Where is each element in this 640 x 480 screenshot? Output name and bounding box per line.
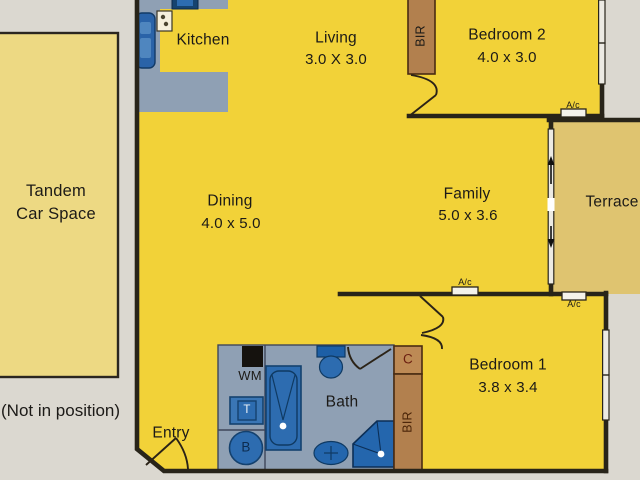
window-bedroom2 bbox=[599, 0, 605, 84]
label-bir-bedroom1: BIR bbox=[401, 411, 415, 432]
label-kitchen: Kitchen bbox=[176, 33, 229, 50]
bathtub-icon bbox=[266, 366, 301, 450]
sliding-door-terrace bbox=[548, 129, 555, 284]
label-entry: Entry bbox=[152, 426, 189, 443]
label-dining: Dining bbox=[207, 194, 252, 211]
label-car-space-line2: Car Space bbox=[16, 206, 96, 224]
floor-plan: Kitchen Living 3.0 X 3.0 Bedroom 2 4.0 x… bbox=[0, 0, 640, 480]
label-closet-c: C bbox=[403, 353, 413, 368]
label-bedroom2: Bedroom 2 bbox=[468, 28, 546, 45]
label-car-space-line1: Tandem bbox=[26, 183, 86, 201]
label-not-in-position: (Not in position) bbox=[1, 401, 120, 421]
vanity-basin-icon bbox=[314, 442, 348, 465]
label-ac-bedroom1: A/c bbox=[567, 300, 581, 310]
label-bir-bedroom2: BIR bbox=[414, 25, 428, 46]
stove-icon bbox=[157, 11, 172, 31]
dims-living: 3.0 X 3.0 bbox=[305, 52, 367, 68]
label-basin-b: B bbox=[241, 441, 250, 456]
ac-unit-family bbox=[452, 287, 478, 295]
label-wm: WM bbox=[238, 369, 262, 383]
label-ac-family: A/c bbox=[458, 278, 472, 288]
label-bedroom1: Bedroom 1 bbox=[469, 358, 547, 375]
label-trough-t: T bbox=[243, 404, 250, 416]
toilet-icon bbox=[317, 346, 345, 378]
label-bath: Bath bbox=[326, 395, 359, 412]
dims-family: 5.0 x 3.6 bbox=[438, 208, 497, 224]
label-living: Living bbox=[315, 31, 357, 48]
label-family: Family bbox=[444, 187, 491, 204]
label-terrace: Terrace bbox=[585, 195, 638, 212]
label-ac-bedroom2: A/c bbox=[566, 101, 580, 111]
washing-machine-icon bbox=[242, 346, 263, 367]
dims-bedroom2: 4.0 x 3.0 bbox=[477, 50, 536, 66]
dims-dining: 4.0 x 5.0 bbox=[201, 216, 260, 232]
dims-bedroom1: 3.8 x 3.4 bbox=[478, 380, 537, 396]
